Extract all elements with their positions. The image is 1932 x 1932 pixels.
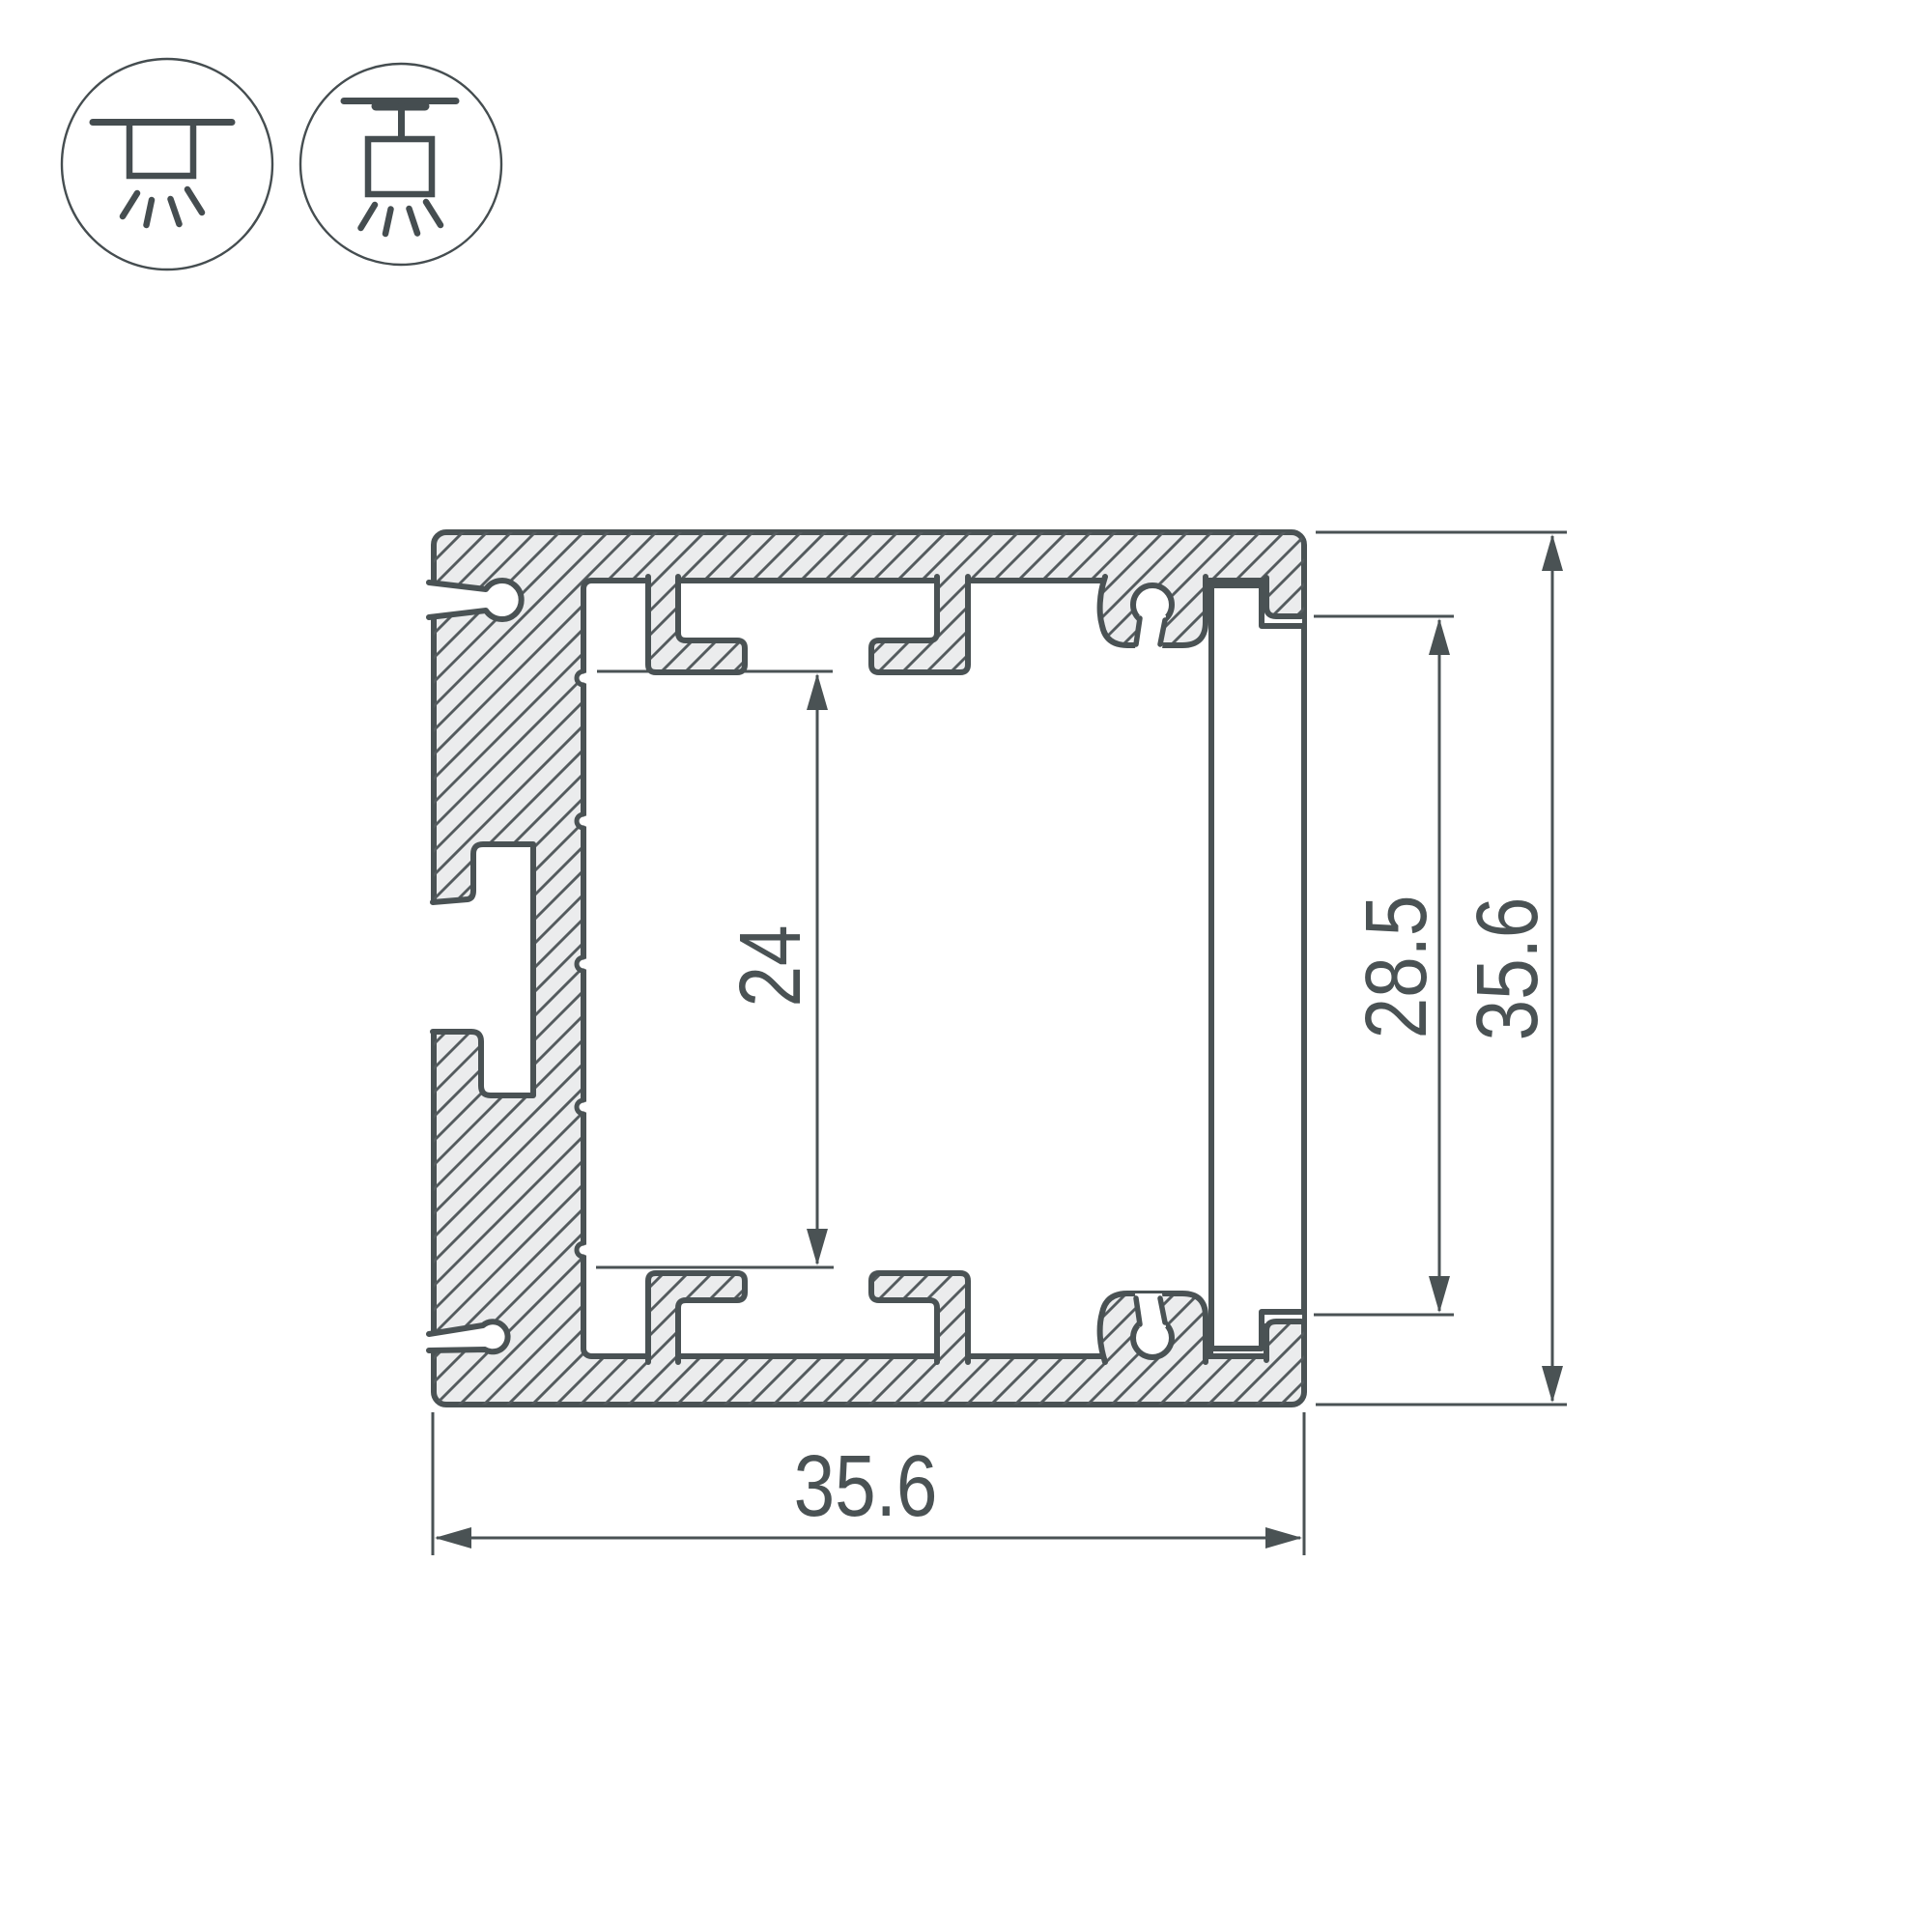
- svg-text:35.6: 35.6: [794, 1436, 938, 1534]
- svg-text:35.6: 35.6: [1458, 897, 1555, 1041]
- svg-text:28.5: 28.5: [1347, 895, 1444, 1039]
- svg-text:24: 24: [721, 924, 818, 1007]
